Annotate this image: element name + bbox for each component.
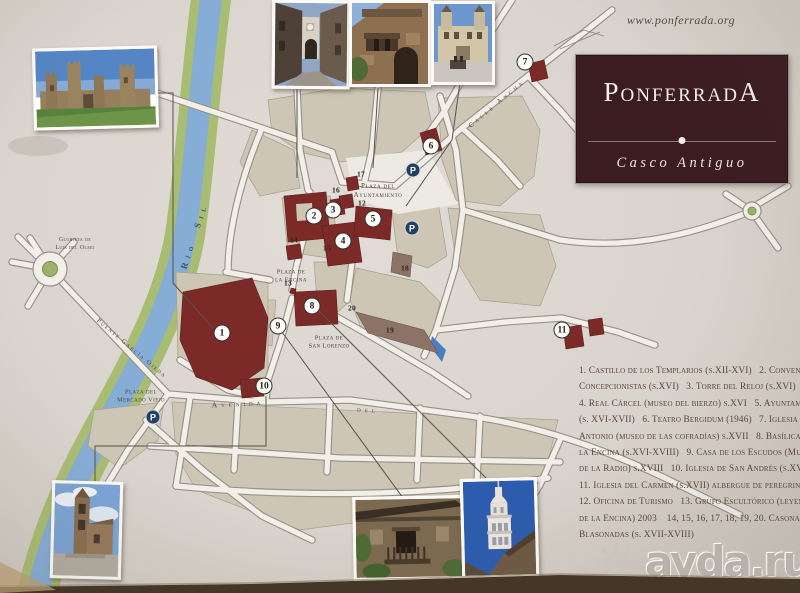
- board-stain: [8, 136, 68, 156]
- map-board: Glorieta de Luis del OlmoRío SilPuente G…: [0, 0, 800, 593]
- watermark-text: ayda.ru: [645, 537, 800, 586]
- map-legend: 1. Castillo de los Templarios (s.XII-XVI…: [579, 363, 797, 543]
- legend-line: 1. Castillo de los Templarios (s.XII-XVI…: [579, 363, 797, 379]
- church-photo-image: [53, 483, 120, 577]
- street-photo-image: [275, 3, 348, 87]
- building-17-casona: [346, 176, 359, 191]
- castle-photo-image: [35, 48, 156, 127]
- convento-courtyard: [296, 203, 313, 221]
- photo-casona-calle: [349, 0, 431, 87]
- sun-icon: [592, 536, 640, 586]
- building-10-san-andres: [240, 378, 264, 398]
- building-1-castillo: [180, 278, 268, 390]
- legend-line: (s. XVI-XVII) 6. Teatro Bergidum (1946) …: [579, 412, 797, 428]
- legend-line: de la Radio) s.XVIII 10. Iglesia de San …: [579, 461, 797, 477]
- website-url: www.ponferrada.org: [575, 13, 787, 28]
- building-11b-carmen: [588, 318, 604, 336]
- page-subtitle: Casco Antiguo: [576, 155, 788, 172]
- glorieta-roundabout: [33, 252, 67, 286]
- legend-line: de la Encina) 2003 14, 15, 16, 17, 18, 1…: [579, 511, 797, 527]
- legend-line: 4. Real Cárcel (museo del bierzo) s.XVI …: [579, 396, 797, 412]
- title-box: PonferradA Casco Antiguo: [575, 54, 789, 184]
- balcony-photo-image: [355, 498, 464, 578]
- townhall-photo-image: [434, 4, 492, 82]
- east-roundabout: [743, 202, 761, 220]
- photo-ayuntamiento: [431, 1, 495, 85]
- photo-casa-escudos-balcon: [352, 495, 467, 581]
- photo-torre-basilica: [460, 477, 540, 579]
- building-13-grupo: [290, 288, 296, 294]
- building-7-san-antonio: [528, 60, 548, 82]
- photo-iglesia-san-andres: [50, 480, 124, 580]
- legend-line: 11. Iglesia del Carmen (s.XVII) albergue…: [579, 478, 797, 494]
- title-separator-dot: [679, 137, 686, 144]
- building-8-basilica: [294, 290, 338, 326]
- photo-calle-reloj: [272, 0, 351, 89]
- stone-house-photo-image: [352, 3, 428, 84]
- watermark: ayda.ru: [592, 536, 800, 586]
- legend-line: la Encina (s.XVI-XVIII) 9. Casa de los E…: [579, 445, 797, 461]
- legend-line: Concepcionistas (s.XVI) 3. Torre del Rel…: [579, 379, 797, 395]
- page-title: PonferradA: [576, 55, 788, 108]
- legend-line: 12. Oficina de Turismo 13. Grupo Escultó…: [579, 494, 797, 510]
- building-18: [391, 252, 412, 277]
- building-16-casona: [339, 194, 354, 209]
- building-5-ayuntamiento: [354, 206, 392, 240]
- building-11a-carmen: [563, 325, 584, 349]
- photo-castillo-templarios: [32, 45, 159, 130]
- building-14-casona: [286, 244, 302, 260]
- tower-photo-image: [463, 480, 536, 576]
- legend-line: Antonio (museo de las cofradías) s.XVII …: [579, 429, 797, 445]
